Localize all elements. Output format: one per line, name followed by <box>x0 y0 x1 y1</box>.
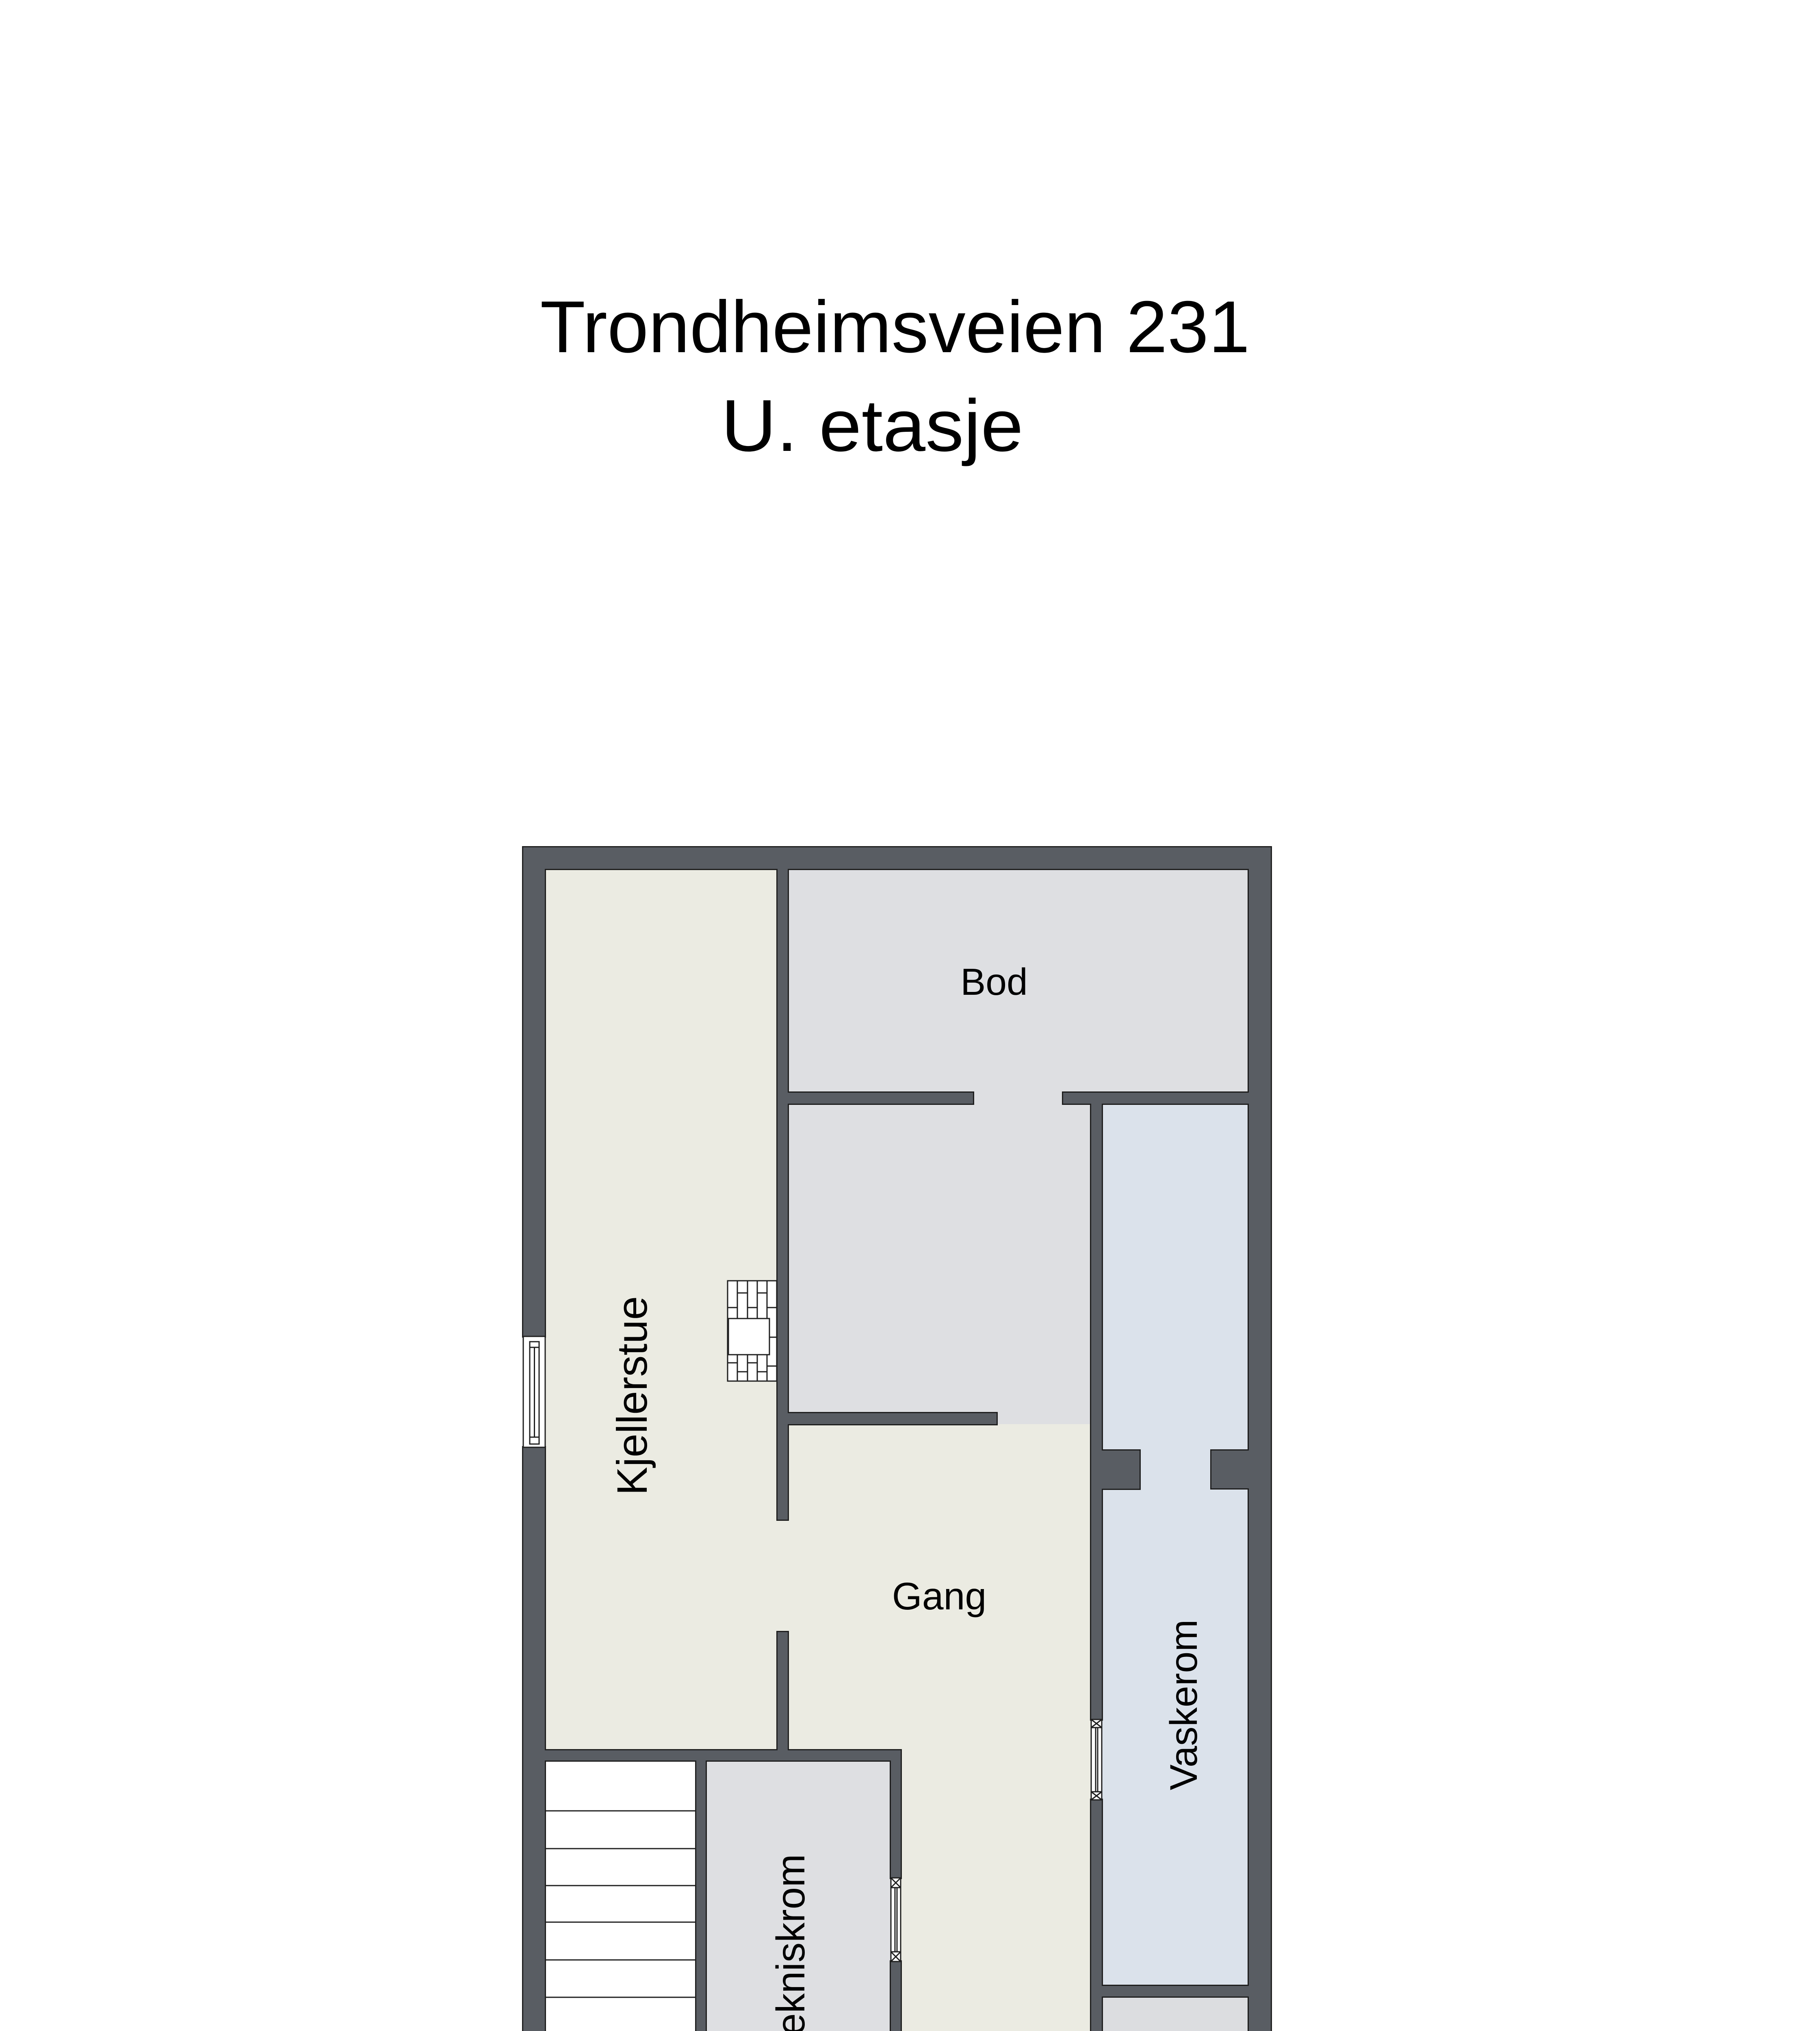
svg-text:Gang: Gang <box>892 1575 986 1618</box>
svg-text:Bod: Bod <box>960 961 1027 1003</box>
svg-text:Kjellerstue: Kjellerstue <box>609 1296 656 1495</box>
svg-text:Tekniskrom: Tekniskrom <box>768 1854 813 2031</box>
svg-text:Vaskerom: Vaskerom <box>1162 1620 1205 1791</box>
svg-text:Trondheimsveien 231: Trondheimsveien 231 <box>540 286 1250 368</box>
svg-text:U. etasje: U. etasje <box>721 385 1023 467</box>
